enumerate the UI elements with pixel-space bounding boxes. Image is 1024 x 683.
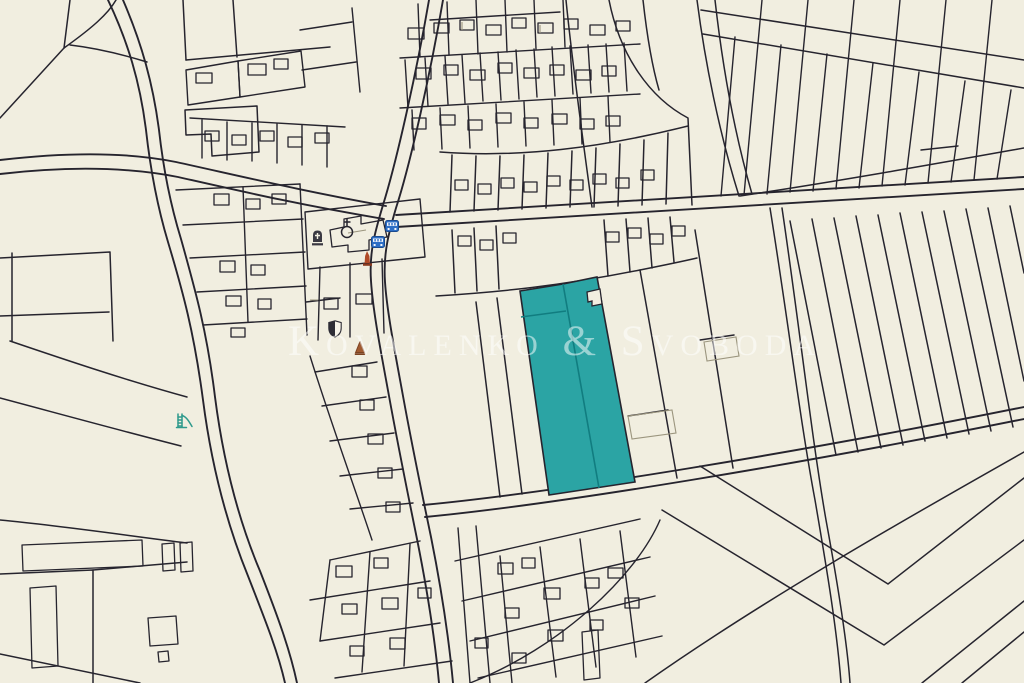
cadastral-map-canvas[interactable]: Kovalenko & Svoboda — [0, 0, 1024, 683]
highlighted-parcel[interactable] — [520, 277, 635, 495]
tombstone-icon — [311, 229, 324, 252]
bus-stop-icon — [371, 235, 385, 253]
memorial-red-icon — [362, 251, 373, 272]
obelisk-brown-icon — [354, 341, 366, 361]
cadastral-map-svg — [0, 0, 1024, 683]
roads — [0, 0, 1024, 683]
highlighted-parcel-group — [520, 277, 635, 495]
church-symbol-icon — [342, 219, 353, 238]
red-marker — [970, 677, 980, 683]
playground-slide-icon — [175, 412, 194, 435]
bus-stop-icon — [385, 219, 399, 237]
strip-fields-upper — [721, 0, 1011, 196]
fields-top-right — [566, 0, 1024, 207]
heraldic-shield-icon — [328, 320, 342, 343]
light-detail-lines — [310, 22, 739, 439]
fields-top-left — [0, 0, 330, 446]
